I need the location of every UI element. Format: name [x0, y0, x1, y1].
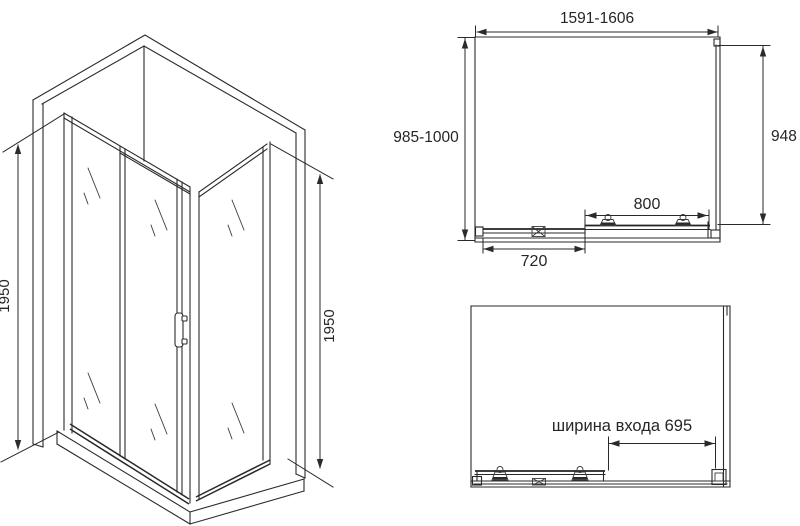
dim-entrance-width-label: ширина входа 695	[552, 417, 692, 435]
dim-width-range-label: 1591-1606	[560, 10, 634, 27]
dim-height-left: 1950	[0, 114, 64, 462]
wall-profile-cap	[476, 227, 484, 236]
plan-door-assembly	[475, 215, 720, 239]
dim-depth-range: 985-1000	[393, 38, 474, 241]
dim-width-range: 1591-1606	[476, 10, 719, 36]
glass-reflection-marks	[84, 168, 244, 440]
dim-door-width-label: 800	[634, 196, 661, 213]
dim-height-left-label: 1950	[0, 279, 13, 312]
roller	[492, 467, 508, 481]
door-top-rail	[120, 153, 190, 194]
dim-fixed-panel: 720	[483, 238, 585, 270]
iso-side-face	[199, 142, 270, 464]
dim-side-panel-label: 948	[771, 128, 797, 145]
dim-depth-range-label: 985-1000	[393, 129, 459, 146]
iso-front-face	[64, 113, 199, 503]
roller	[572, 467, 588, 481]
top-plan-view: 1591-1606 985-1000 948 800	[393, 10, 797, 270]
plan-outline	[475, 37, 720, 242]
roller	[675, 215, 691, 226]
dim-entrance-width: ширина входа 695	[552, 417, 716, 470]
iso-view: 1950 1950	[0, 35, 338, 524]
iso-walls-and-frame	[33, 35, 305, 478]
open-plan-view: ширина входа 695	[471, 306, 730, 487]
dim-fixed-panel-label: 720	[521, 253, 548, 270]
dim-side-panel: 948	[718, 46, 797, 225]
drawing-svg: 1950 1950	[0, 0, 800, 526]
open-outline	[471, 306, 730, 487]
roller	[600, 215, 616, 226]
dim-height-right-label: 1950	[321, 309, 338, 342]
panel-clamp	[532, 227, 545, 237]
open-door-assembly	[473, 467, 727, 486]
iso-bottom-rails	[70, 424, 270, 504]
door-handle	[175, 313, 187, 347]
technical-drawing-canvas: 1950 1950	[0, 0, 800, 526]
